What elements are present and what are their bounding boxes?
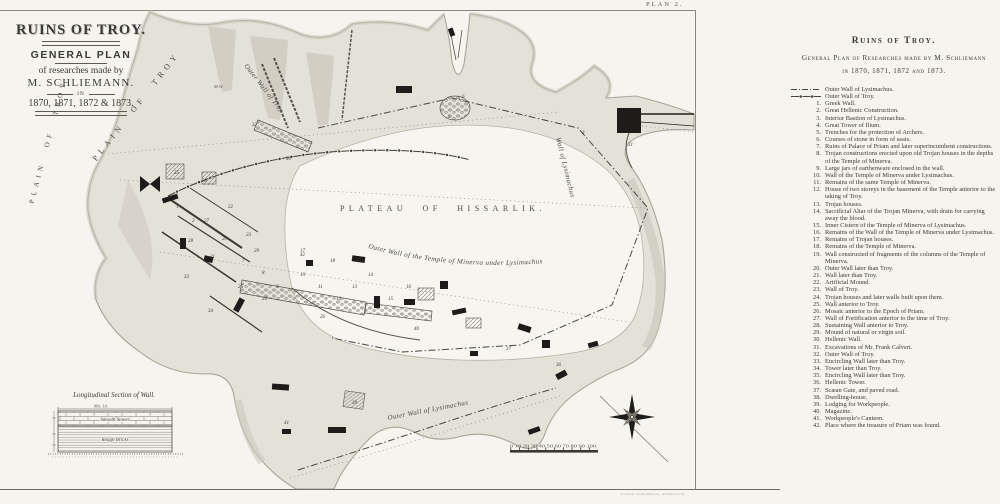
legend-item-text: Ruins of Palace of Priam and later super… (825, 143, 997, 150)
legend-item-text: Great Hellenic Construction. (825, 107, 997, 114)
legend-list: Outer Wall of Lysimachus. Outer Wall of … (791, 86, 997, 430)
legend-item-text: Scæan Gate, and paved road. (825, 387, 997, 394)
legend-item-text: Remains of the same Temple of Minerva. (825, 179, 997, 186)
map-number-37: 37 (506, 347, 512, 352)
legend-item-text: Wall of Fortification anterior to the ti… (825, 315, 997, 322)
legend-item-number: 10. (791, 172, 821, 179)
legend-item-6: 6.Courses of stone in form of seats. (791, 136, 997, 143)
map-number-26: 26 (320, 315, 326, 320)
map-number-19: 19 (356, 259, 362, 264)
map-number-42: 42 (300, 253, 306, 258)
legend-item-number: 8. (791, 150, 821, 157)
legend-item-36: 36.Hellenic Tower. (791, 379, 997, 386)
legend-item-text: Lodging for Workpeople. (825, 401, 997, 408)
legend-item-24: 24.Trojan houses and later walls built u… (791, 294, 997, 301)
legend-item-17: 17.Remains of Trojan houses. (791, 236, 997, 243)
legend-item-text: Wall later than Troy. (825, 272, 997, 279)
legend-item-text: Sustaining Wall anterior to Troy. (825, 322, 997, 329)
legend-item-number: 19. (791, 251, 821, 258)
legend-symbol-lysimachus: Outer Wall of Lysimachus. (791, 86, 997, 93)
legend-years: in 1870, 1871, 1872 and 1873. (791, 67, 997, 75)
legend-item-40: 40.Magazine. (791, 408, 997, 415)
legend-item-number: 14. (791, 208, 821, 215)
legend-item-number: 3. (791, 115, 821, 122)
legend-item-10: 10.Wall of the Temple of Minerva under L… (791, 172, 997, 179)
legend-item-32: 32.Outer Wall of Troy. (791, 351, 997, 358)
title-in-bar-left (47, 94, 73, 95)
legend-item-number: 42. (791, 422, 821, 429)
legend-item-text: Hellenic Wall. (825, 336, 997, 343)
legend-item-number: 38. (791, 394, 821, 401)
legend-item-text: Magazine. (825, 408, 997, 415)
legend-item-25: 25.Wall anterior to Troy. (791, 301, 997, 308)
legend-item-5: 5.Trenches for the protection of Archers… (791, 129, 997, 136)
legend-item-number: 4. (791, 122, 821, 129)
legend-item-text: Remains of Trojan houses. (825, 236, 997, 243)
legend-item-number: 27. (791, 315, 821, 322)
legend-subtitle: General Plan of Researches made by M. Sc… (791, 54, 997, 62)
map-number-28: 28 (188, 239, 194, 244)
plateau-of-hissarlik (285, 125, 644, 360)
scale-bar: 0 10 20 30 40 50 60 70 80 90 100 (510, 444, 598, 453)
legend-item-31: 31.Excavations of Mr. Frank Calvert. (791, 344, 997, 351)
legend-item-38: 38.Dwelling-house. (791, 394, 997, 401)
legend-item-37: 37.Scæan Gate, and paved road. (791, 387, 997, 394)
map-number-27: 27 (204, 219, 210, 224)
map-number-12: 12 (336, 297, 342, 302)
map-number-13: 13 (352, 285, 358, 290)
map-number-20: 20 (222, 237, 228, 242)
legend-item-30: 30.Hellenic Wall. (791, 336, 997, 343)
legend-item-number: 9. (791, 165, 821, 172)
legend-item-34: 34.Tower later than Troy. (791, 365, 997, 372)
map-number-11: 11 (318, 285, 323, 290)
legend-item-number: 18. (791, 243, 821, 250)
legend-item-text: Trojan constructions erected upon old Tr… (825, 150, 997, 164)
title-rule-2 (55, 63, 107, 64)
legend-item-number: 21. (791, 272, 821, 279)
legend-item-text: Place where the treasure of Priam was fo… (825, 422, 997, 429)
legend-item-text: Encircling Wall later than Troy. (825, 358, 997, 365)
legend-item-23: 23.Wall of Troy. (791, 286, 997, 293)
legend-item-text: House of two storeys in the basement of … (825, 186, 997, 200)
map-number-16: 16 (406, 285, 412, 290)
legend-item-number: 11. (791, 179, 821, 186)
legend-symbol-label: Outer Wall of Troy. (825, 93, 997, 100)
map-number-40: 40 (414, 327, 420, 332)
legend-item-number: 28. (791, 322, 821, 329)
legend-item-text: Excavations of Mr. Frank Calvert. (825, 344, 997, 351)
legend-item-22: 22.Artificial Mound. (791, 279, 997, 286)
section-diagram: Longitudinal Section of Wall. Mtr. 10. S… (48, 391, 184, 457)
map-number-14: 14 (368, 273, 374, 278)
map-number-24: 24 (262, 297, 268, 302)
map-number-36: 36 (556, 363, 562, 368)
legend-item-text: Inner Cistern of the Temple of Minerva o… (825, 222, 997, 229)
legend-item-number: 16. (791, 229, 821, 236)
legend-item-number: 20. (791, 265, 821, 272)
map-number-29: 29 (254, 249, 260, 254)
map-number-23: 23 (246, 233, 252, 238)
legend-item-text: Artificial Mound. (825, 279, 997, 286)
legend-item-text: Tower later than Troy. (825, 365, 997, 372)
map-number-21: 21 (210, 255, 215, 260)
legend-item-number: 23. (791, 286, 821, 293)
legend-item-number: 17. (791, 236, 821, 243)
legend-item-number: 32. (791, 351, 821, 358)
legend-item-18: 18.Remains of the Temple of Minerva. (791, 243, 997, 250)
legend-item-42: 42.Place where the treasure of Priam was… (791, 422, 997, 429)
legend-item-number: 13. (791, 201, 821, 208)
legend-item-8: 8.Trojan constructions erected upon old … (791, 150, 997, 164)
map-number-10: 10 (300, 273, 306, 278)
legend-item-13: 13.Trojan houses. (791, 201, 997, 208)
legend-panel: Ruins of Troy. General Plan of Researche… (791, 36, 997, 430)
map-number-34: 34 (208, 309, 214, 314)
legend-item-text: Mosaic anterior to the Epoch of Priam. (825, 308, 997, 315)
map-author: M. SCHLIEMANN. (14, 77, 148, 89)
map-number-22: 22 (228, 205, 234, 210)
legend-symbol-label: Outer Wall of Lysimachus. (825, 86, 997, 93)
title-in: IN (77, 91, 85, 97)
legend-item-number: 36. (791, 379, 821, 386)
legend-item-number: 40. (791, 408, 821, 415)
legend-item-number: 7. (791, 143, 821, 150)
map-subtitle-2: of researches made by (14, 66, 148, 76)
legend-items: 1.Greek Wall.2.Great Hellenic Constructi… (791, 100, 997, 429)
section-measure-label: Mtr. 10. (93, 404, 108, 409)
legend-item-text: Wall anterior to Troy. (825, 301, 997, 308)
legend-item-text: Wall constructed of fragments of the col… (825, 251, 997, 265)
legend-item-39: 39.Lodging for Workpeople. (791, 401, 997, 408)
legend-item-number: 12. (791, 186, 821, 193)
map-number-15: 15 (388, 297, 394, 302)
legend-item-4: 4.Great Tower of Ilium. (791, 122, 997, 129)
legend-item-text: Hellenic Tower. (825, 379, 997, 386)
legend-item-15: 15.Inner Cistern of the Temple of Minerv… (791, 222, 997, 229)
scale-bar-numbers: 0 10 20 30 40 50 60 70 80 90 100 (510, 444, 596, 449)
legend-item-27: 27.Wall of Fortification anterior to the… (791, 315, 997, 322)
legend-item-text: Wall of the Temple of Minerva under Lysi… (825, 172, 997, 179)
title-in-row: IN (14, 91, 148, 97)
legend-item-text: Trojan houses. (825, 201, 997, 208)
map-number-18: 18 (330, 259, 336, 264)
legend-item-text: Great Tower of Ilium. (825, 122, 997, 129)
map-title-block: RUINS OF TROY. GENERAL PLAN of researche… (14, 22, 148, 116)
map-subtitle: GENERAL PLAN (14, 49, 148, 61)
legend-item-14: 14.Sacrificial Altar of the Trojan Miner… (791, 208, 997, 222)
legend-item-text: Workpeople's Canteen. (825, 415, 997, 422)
legend-item-41: 41.Workpeople's Canteen. (791, 415, 997, 422)
section-title: Longitudinal Section of Wall. (72, 391, 155, 399)
legend-item-text: Interior Bastion of Lysimachus. (825, 115, 997, 122)
legend-item-text: Encircling Wall later than Troy. (825, 372, 997, 379)
legend-item-text: Remains of the Temple of Minerva. (825, 243, 997, 250)
legend-symbol-troy: Outer Wall of Troy. (791, 93, 997, 100)
map-number-32: 32 (252, 123, 258, 128)
legend-item-number: 34. (791, 365, 821, 372)
legend-item-21: 21.Wall later than Troy. (791, 272, 997, 279)
legend-item-number: 15. (791, 222, 821, 229)
legend-item-number: 37. (791, 387, 821, 394)
dash-dot-circle-line-symbol (791, 94, 821, 101)
title-rule-3 (35, 111, 127, 116)
legend-item-11: 11.Remains of the same Temple of Minerva… (791, 179, 997, 186)
legend-item-number: 22. (791, 279, 821, 286)
legend-item-number: 30. (791, 336, 821, 343)
legend-item-33: 33.Encircling Wall later than Troy. (791, 358, 997, 365)
legend-item-16: 16.Remains of the Wall of the Temple of … (791, 229, 997, 236)
map-number-1: 1 (176, 205, 179, 210)
legend-item-text: Sacrificial Altar of the Trojan Minerva,… (825, 208, 997, 222)
legend-item-number: 26. (791, 308, 821, 315)
legend-item-20: 20.Outer Wall later than Troy. (791, 265, 997, 272)
map-number-38: 38 (202, 179, 208, 184)
legend-item-text: Dwelling-house. (825, 394, 997, 401)
compass-rose-icon (600, 394, 668, 462)
legend-item-3: 3.Interior Bastion of Lysimachus. (791, 115, 997, 122)
legend-item-1: 1.Greek Wall. (791, 100, 997, 107)
legend-item-35: 35.Encircling Wall later than Troy. (791, 372, 997, 379)
legend-item-text: Outer Wall later than Troy. (825, 265, 997, 272)
legend-item-text: Remains of the Wall of the Temple of Min… (825, 229, 997, 236)
map-years: 1870, 1871, 1872 & 1873. (14, 98, 148, 109)
title-rule (42, 41, 120, 46)
legend-item-text: Outer Wall of Troy. (825, 351, 997, 358)
dashdot-line-symbol (791, 87, 821, 94)
legend-item-number: 24. (791, 294, 821, 301)
legend-item-9: 9.Large jars of earthenware enclosed in … (791, 165, 997, 172)
title-in-bar-right (89, 94, 115, 95)
label-mw: M.W. (213, 84, 224, 89)
legend-item-text: Trojan houses and later walls built upon… (825, 294, 997, 301)
legend-item-text: Courses of stone in form of seats. (825, 136, 997, 143)
legend-item-7: 7.Ruins of Palace of Priam and later sup… (791, 143, 997, 150)
legend-item-29: 29.Mound of natural or virgin soil. (791, 329, 997, 336)
legend-item-number: 41. (791, 415, 821, 422)
map-number-41: 41 (284, 421, 289, 426)
map-number-39: 39 (352, 401, 358, 406)
legend-item-number: 29. (791, 329, 821, 336)
legend-item-28: 28.Sustaining Wall anterior to Troy. (791, 322, 997, 329)
legend-item-2: 2.Great Hellenic Construction. (791, 107, 997, 114)
map-number-35: 35 (174, 171, 180, 176)
legend-item-text: Greek Wall. (825, 100, 997, 107)
legend-item-text: Wall of Troy. (825, 286, 997, 293)
legend-item-number: 33. (791, 358, 821, 365)
legend-item-number: 31. (791, 344, 821, 351)
legend-item-number: 1. (791, 100, 821, 107)
legend-item-number: 39. (791, 401, 821, 408)
legend-item-12: 12.House of two storeys in the basement … (791, 186, 997, 200)
legend-item-number: 6. (791, 136, 821, 143)
section-upper-label: Smooth Stones (100, 418, 129, 423)
legend-item-number: 25. (791, 301, 821, 308)
legend-item-text: Mound of natural or virgin soil. (825, 329, 997, 336)
legend-item-19: 19.Wall constructed of fragments of the … (791, 251, 997, 265)
section-lower-label: Rough Bricks (100, 438, 128, 443)
legend-item-number: 35. (791, 372, 821, 379)
map-number-33: 33 (184, 275, 190, 280)
map-number-31: 31 (628, 143, 633, 148)
label-plateau-of-hissarlik: PLATEAU OF HISSARLIK. (340, 204, 546, 213)
legend-item-text: Large jars of earthenware enclosed in th… (825, 165, 997, 172)
map-title: RUINS OF TROY. (14, 22, 148, 39)
legend-item-text: Trenches for the protection of Archers. (825, 129, 997, 136)
map-number-30: 30 (286, 157, 292, 162)
legend-item-26: 26.Mosaic anterior to the Epoch of Priam… (791, 308, 997, 315)
legend-item-number: 5. (791, 129, 821, 136)
map-number-25: 25 (238, 285, 244, 290)
legend-title: Ruins of Troy. (791, 36, 997, 46)
legend-item-number: 2. (791, 107, 821, 114)
